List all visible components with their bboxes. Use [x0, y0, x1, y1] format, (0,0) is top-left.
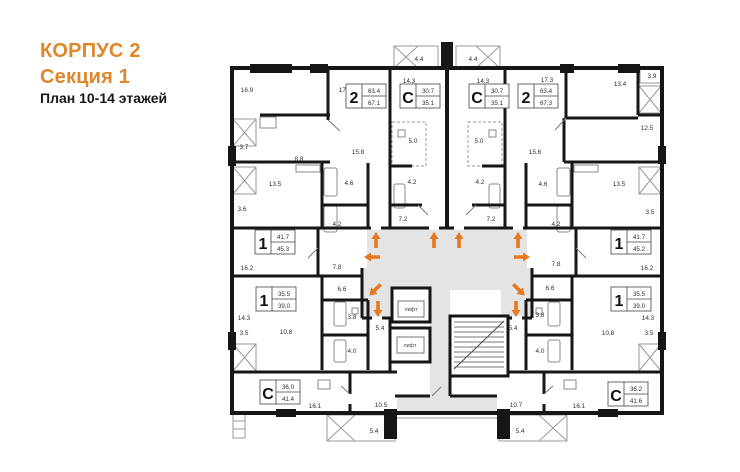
room-area-label: 5.4 [370, 428, 379, 435]
room-area-label: 10.8 [280, 329, 293, 336]
elevator-label: лифт [404, 343, 417, 349]
apartment-type: С [471, 90, 483, 107]
apartment-label: 1 35.5 39.0 [611, 287, 651, 311]
apartment-total-area: 45.3 [277, 246, 290, 253]
room-area-label: 10.5 [375, 402, 388, 409]
apartment-total-area: 35.1 [422, 100, 435, 107]
apartment-label: 2 63.4 67.1 [346, 84, 386, 108]
room-area-label: 10.8 [602, 330, 615, 337]
room-area-label: 3.5 [646, 209, 655, 216]
room-area-label: 16.2 [241, 265, 254, 272]
room-area-label: 3.8 [536, 312, 545, 319]
room-area-label: 3.5 [645, 330, 654, 337]
apartment-label: С 30.7 35.1 [469, 84, 509, 108]
apartment-total-area: 45.2 [633, 246, 646, 253]
apartment-total-area: 41.6 [630, 398, 643, 405]
room-area-label: 5.4 [516, 428, 525, 435]
room-area-label: 5.4 [376, 325, 385, 332]
room-area-label: 3.6 [238, 206, 247, 213]
room-area-label: 16.1 [573, 403, 586, 410]
room-area-label: 4.0 [348, 348, 357, 355]
floor-plan-drawing: лифт лифт 16.9 17.3 4.4 4.4 [0, 0, 740, 472]
room-area-label: 3.5 [240, 330, 249, 337]
elevator-label: лифт [405, 307, 418, 313]
apartment-label: С 36.2 41.6 [608, 382, 648, 406]
apartment-living-area: 63.4 [368, 88, 381, 95]
room-area-label: 4.2 [552, 221, 561, 228]
room-area-label: 4.6 [539, 181, 548, 188]
room-area-label: 4.2 [333, 221, 342, 228]
room-area-label: 13.5 [269, 181, 282, 188]
apartment-type: 1 [615, 293, 624, 310]
room-area-label: 16.2 [641, 265, 654, 272]
apartment-living-area: 30.7 [422, 88, 435, 95]
room-area-label: 13.4 [614, 81, 627, 88]
room-area-label: 5.0 [475, 138, 484, 145]
elevator-block: лифт лифт [390, 288, 430, 362]
room-area-label: 13.5 [613, 181, 626, 188]
apartment-type: 1 [615, 236, 624, 253]
apartment-label: 2 63.4 67.3 [518, 84, 558, 108]
room-area-label: 16.1 [309, 403, 322, 410]
apartment-label: С 36.0 41.4 [260, 380, 300, 404]
apartment-type: С [262, 386, 274, 403]
room-area-label: 4.6 [345, 180, 354, 187]
room-area-label: 7.2 [487, 216, 496, 223]
apartment-living-area: 41.7 [277, 234, 290, 241]
apartment-living-area: 35.5 [633, 291, 646, 298]
apartment-type: 1 [259, 236, 268, 253]
apartment-total-area: 39.0 [633, 303, 646, 310]
room-area-label: 4.4 [469, 56, 478, 63]
apartment-living-area: 63.4 [540, 88, 553, 95]
room-area-label: 7.2 [399, 216, 408, 223]
room-area-label: 14.3 [642, 315, 655, 322]
apartment-living-area: 41.7 [633, 234, 646, 241]
apartment-type: 2 [522, 90, 531, 107]
apartment-total-area: 35.1 [491, 100, 504, 107]
room-area-label: 3.9 [648, 73, 657, 80]
room-area-label: 16.9 [241, 87, 254, 94]
room-area-label: 6.6 [338, 286, 347, 293]
room-area-label: 15.6 [529, 149, 542, 156]
room-area-label: 4.2 [476, 179, 485, 186]
apartment-type: С [402, 90, 414, 107]
room-area-label: 4.4 [415, 56, 424, 63]
apartment-living-area: 35.5 [278, 291, 291, 298]
apartment-label: 1 41.7 45.2 [611, 230, 651, 254]
apartment-living-area: 36.2 [630, 386, 643, 393]
apartment-total-area: 67.3 [540, 100, 553, 107]
room-area-label: 4.0 [536, 348, 545, 355]
apartment-living-area: 36.0 [282, 384, 295, 391]
room-area-label: 7.8 [333, 264, 342, 271]
apartment-label: 1 41.7 45.3 [255, 230, 295, 254]
room-area-label: 6.6 [546, 285, 555, 292]
apartment-total-area: 39.0 [278, 303, 291, 310]
apartment-living-area: 30.7 [491, 88, 504, 95]
floor-plan-page: КОРПУС 2 Секция 1 План 10-14 этажей [0, 0, 740, 472]
room-area-label: 10.7 [510, 402, 523, 409]
room-area-label: 4.2 [408, 179, 417, 186]
room-area-label: 12.5 [641, 125, 654, 132]
room-area-label: 5.0 [409, 138, 418, 145]
apartment-label: 1 35.5 39.0 [256, 287, 296, 311]
apartment-type: 1 [260, 293, 269, 310]
apartment-type: С [610, 388, 622, 405]
room-area-label: 5.4 [509, 325, 518, 332]
staircase [450, 316, 508, 376]
room-area-label: 15.8 [352, 149, 365, 156]
apartment-total-area: 67.1 [368, 100, 381, 107]
room-area-label: 7.8 [552, 261, 561, 268]
apartment-label: С 30.7 35.1 [400, 84, 440, 108]
room-area-label: 17.3 [541, 77, 554, 84]
room-area-label: 8.8 [295, 156, 304, 163]
room-area-label: 14.3 [238, 315, 251, 322]
room-area-label: 3.7 [240, 144, 249, 151]
room-area-label: 3.8 [348, 314, 357, 321]
apartment-type: 2 [350, 90, 359, 107]
apartment-total-area: 41.4 [282, 396, 295, 403]
